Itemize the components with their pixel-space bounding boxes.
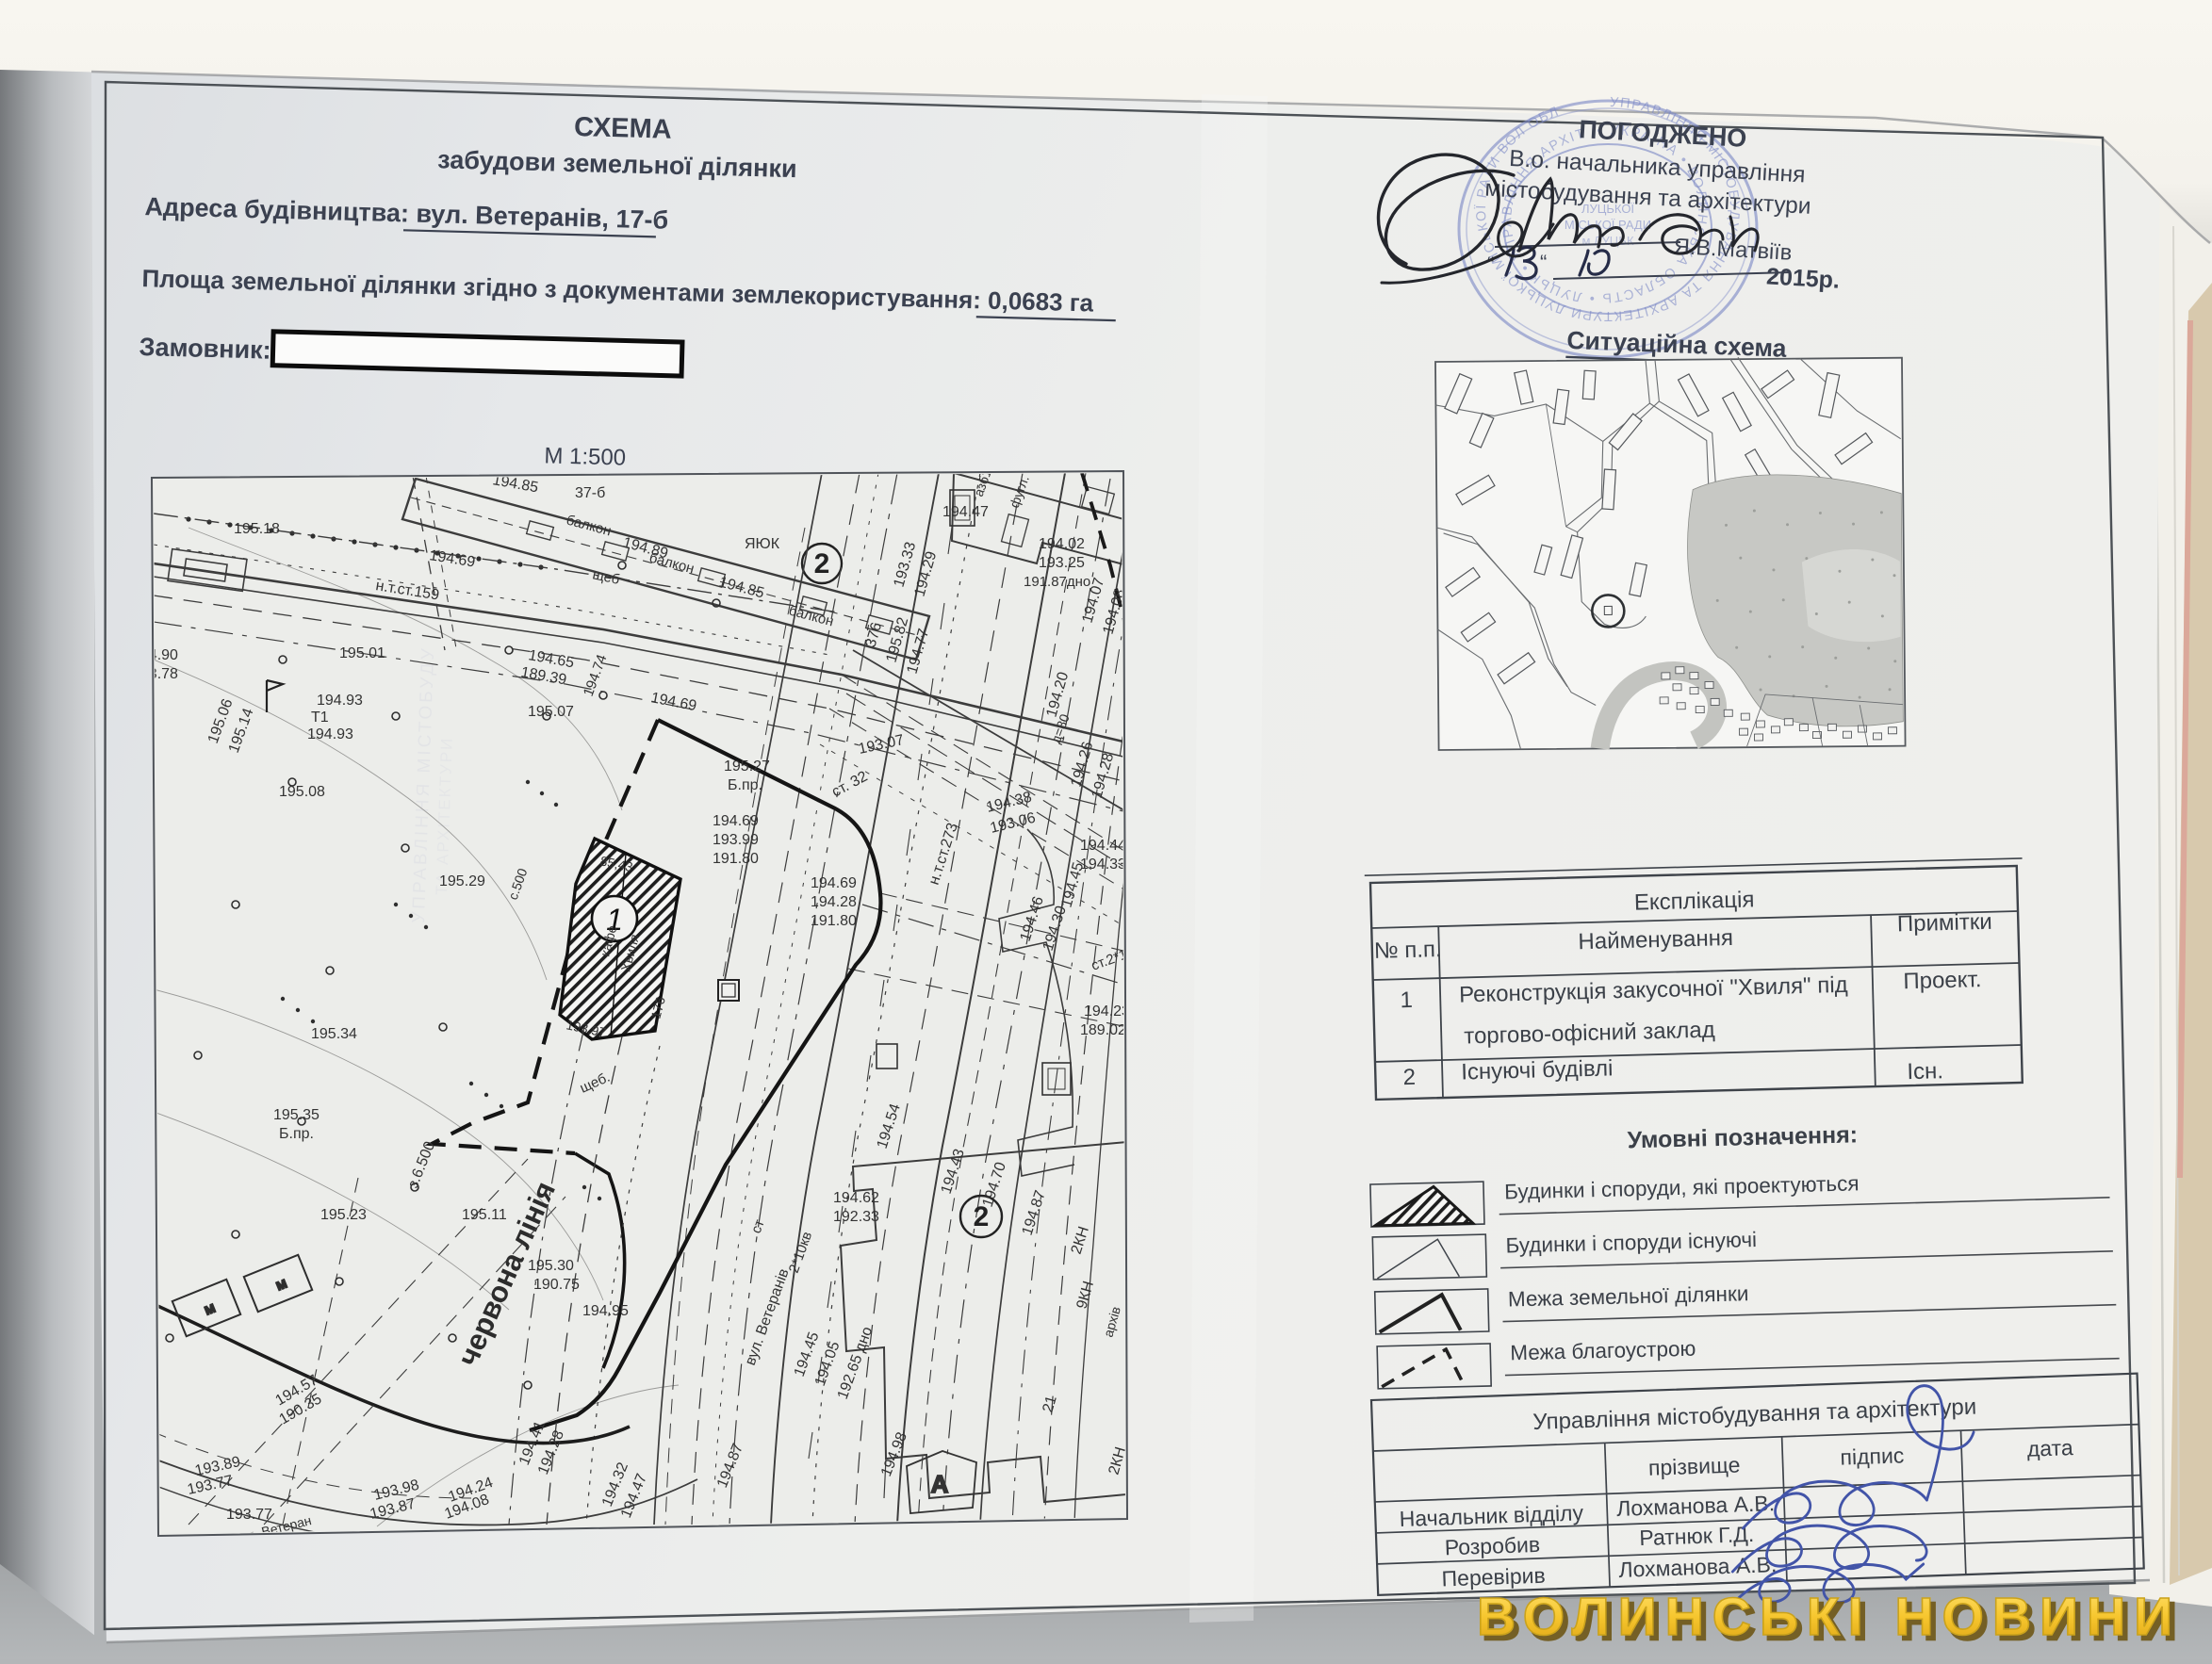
svg-text:дата: дата — [2026, 1435, 2073, 1461]
svg-text:195.35: 195.35 — [273, 1107, 320, 1123]
svg-text:Т1: Т1 — [311, 710, 329, 726]
svg-text:М 1:500: М 1:500 — [544, 443, 626, 470]
svg-text:191.80: 191.80 — [811, 913, 857, 929]
svg-text:А: А — [931, 1470, 949, 1498]
svg-text:195.11: 195.11 — [462, 1207, 507, 1223]
svg-text:Розробив: Розробив — [1444, 1532, 1540, 1560]
svg-text:191.87дно: 191.87дно — [1024, 574, 1090, 590]
svg-text:2: 2 — [814, 548, 830, 579]
svg-text:195.29: 195.29 — [439, 873, 485, 889]
svg-text:194.93: 194.93 — [317, 693, 363, 709]
svg-text:ВОЛИНСЬКІ НОВИНИ: ВОЛИНСЬКІ НОВИНИ — [1477, 1587, 2181, 1647]
svg-text:2: 2 — [1402, 1065, 1416, 1090]
svg-text:Примітки: Примітки — [1897, 909, 1992, 938]
svg-text:37-б: 37-б — [575, 485, 605, 501]
svg-text:м.ЛУЦЬК: м.ЛУЦЬК — [1581, 234, 1633, 248]
svg-text:підпис: підпис — [1840, 1443, 1905, 1469]
svg-text:194.95: 194.95 — [582, 1303, 629, 1319]
svg-text:194.47: 194.47 — [942, 504, 989, 520]
svg-text:194.69: 194.69 — [713, 813, 759, 829]
svg-text:194.69: 194.69 — [811, 875, 857, 891]
svg-text:194.33: 194.33 — [1080, 856, 1126, 873]
svg-text:195.08: 195.08 — [279, 784, 325, 800]
svg-text:195.01: 195.01 — [339, 645, 385, 661]
svg-text:195.18: 195.18 — [234, 521, 280, 537]
svg-text:192.33: 192.33 — [833, 1209, 879, 1225]
svg-text:195.07: 195.07 — [528, 704, 574, 720]
svg-text:193.99: 193.99 — [713, 832, 759, 848]
svg-text:193.25: 193.25 — [1039, 555, 1085, 571]
svg-text:СХЕМА: СХЕМА — [574, 112, 672, 145]
svg-text:“: “ — [1487, 253, 1494, 276]
svg-text:№ п.п.: № п.п. — [1374, 937, 1442, 964]
svg-text:194.62: 194.62 — [833, 1190, 879, 1206]
svg-text:195.23: 195.23 — [320, 1207, 367, 1223]
svg-text:Експлікація: Експлікація — [1634, 887, 1755, 915]
svg-text:194.23: 194.23 — [1084, 1003, 1130, 1020]
svg-text:2015р.: 2015р. — [1765, 263, 1840, 293]
svg-text:Ратнюк Г.Д.: Ратнюк Г.Д. — [1639, 1522, 1755, 1550]
svg-text:194.02: 194.02 — [1039, 536, 1085, 552]
svg-text:Найменування: Найменування — [1578, 925, 1733, 954]
svg-text:195.30: 195.30 — [528, 1258, 574, 1274]
svg-text:194.28: 194.28 — [811, 894, 857, 910]
svg-text:Існ.: Існ. — [1907, 1058, 1943, 1085]
svg-text:Б.пр.: Б.пр. — [279, 1126, 314, 1142]
svg-text:195.34: 195.34 — [311, 1026, 357, 1042]
svg-text:Умовні позначення:: Умовні позначення: — [1627, 1121, 1858, 1153]
svg-text:194.93: 194.93 — [307, 726, 353, 742]
svg-text:“: “ — [1540, 251, 1547, 274]
svg-text:Існуючі будівлі: Існуючі будівлі — [1461, 1055, 1614, 1085]
svg-text:191.80: 191.80 — [713, 851, 759, 867]
svg-text:ЯЮК: ЯЮК — [745, 536, 780, 552]
svg-text:194.44: 194.44 — [1080, 838, 1126, 854]
svg-text:189.02: 189.02 — [1080, 1022, 1126, 1038]
svg-text:190.75: 190.75 — [533, 1277, 580, 1293]
svg-text:Межа благоустрою: Межа благоустрою — [1510, 1337, 1696, 1365]
svg-text:193.77: 193.77 — [226, 1507, 272, 1523]
svg-text:прізвище: прізвище — [1648, 1452, 1741, 1479]
svg-text:Замовник:: Замовник: — [139, 333, 271, 365]
svg-text:1: 1 — [1400, 987, 1413, 1013]
svg-text:Проект.: Проект. — [1903, 967, 1982, 994]
svg-text:Б.пр.: Б.пр. — [728, 777, 762, 793]
svg-text:195.27: 195.27 — [724, 759, 770, 775]
